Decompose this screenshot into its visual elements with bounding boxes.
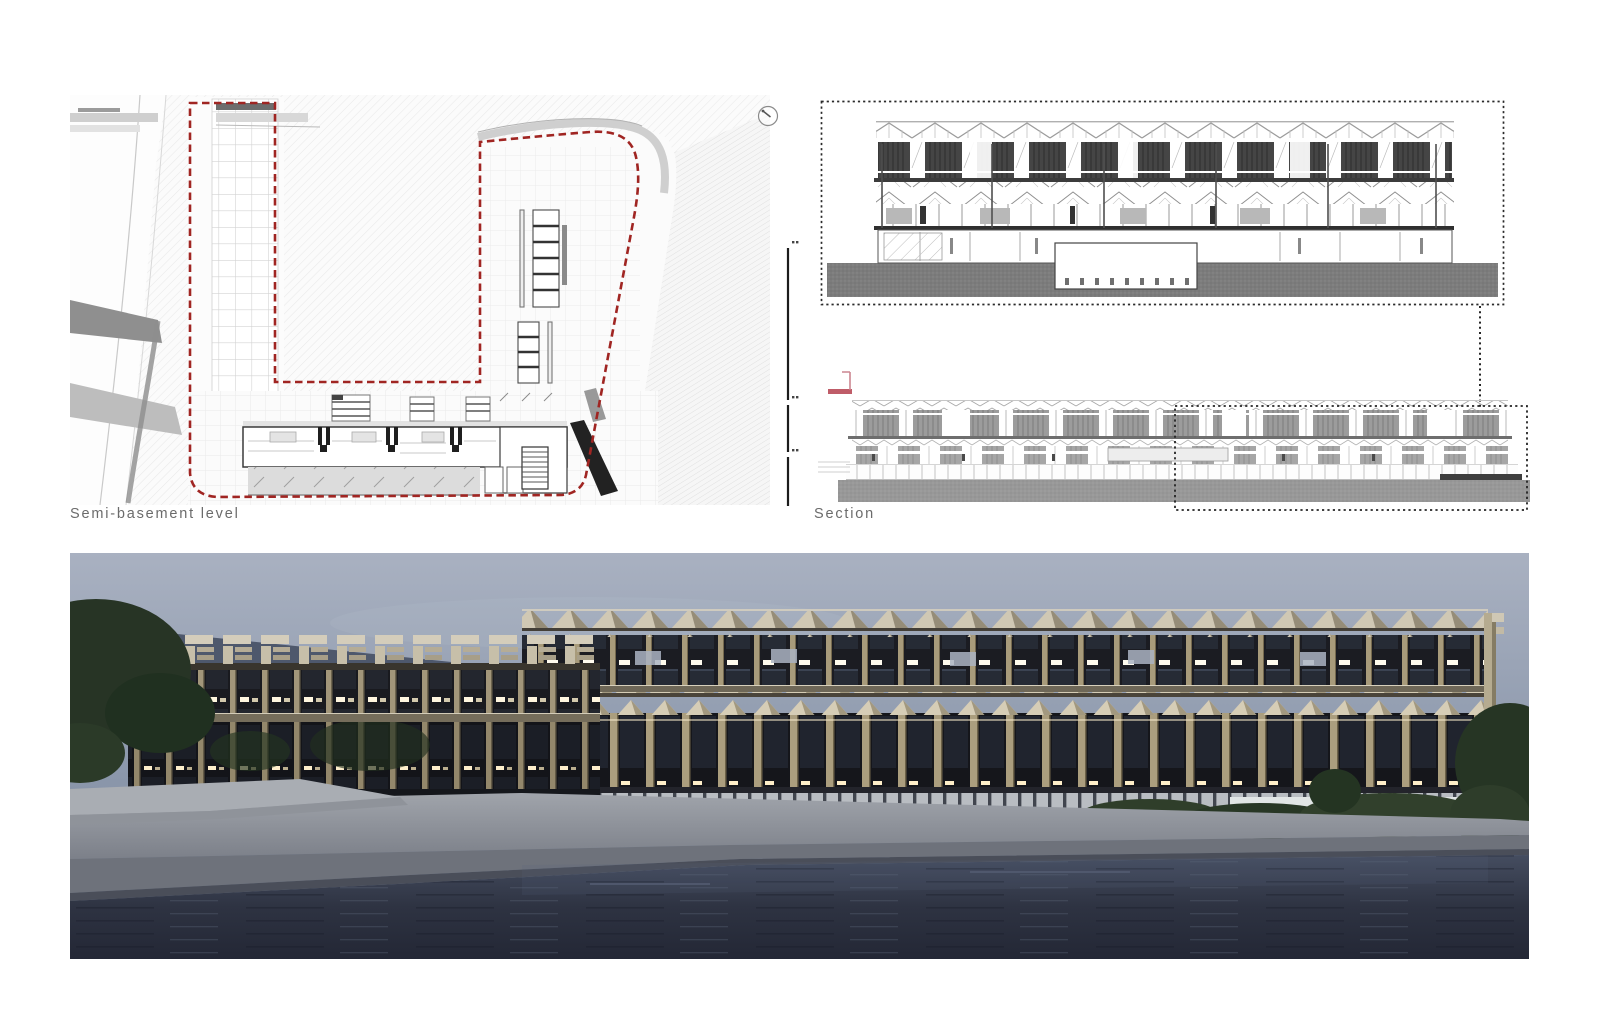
plan-label: Semi-basement level [70,506,240,522]
waterfront-building-render [70,553,1529,959]
plan-panel [70,95,770,505]
north-arrow-icon [755,103,781,129]
section-panel-upper [820,100,1505,306]
section-label: Section [814,506,875,522]
building-elevation-drawing [812,362,1534,514]
section-panel-lower [812,362,1534,514]
vertical-scale-bar [778,228,802,510]
render-panel [70,553,1529,959]
elevation-linework [818,400,1530,502]
key-plan-icon [828,372,852,394]
semi-basement-plan-drawing [70,95,770,505]
building-cross-section-drawing [820,100,1505,306]
presentation-board: Semi-basement level Section [0,0,1600,1029]
